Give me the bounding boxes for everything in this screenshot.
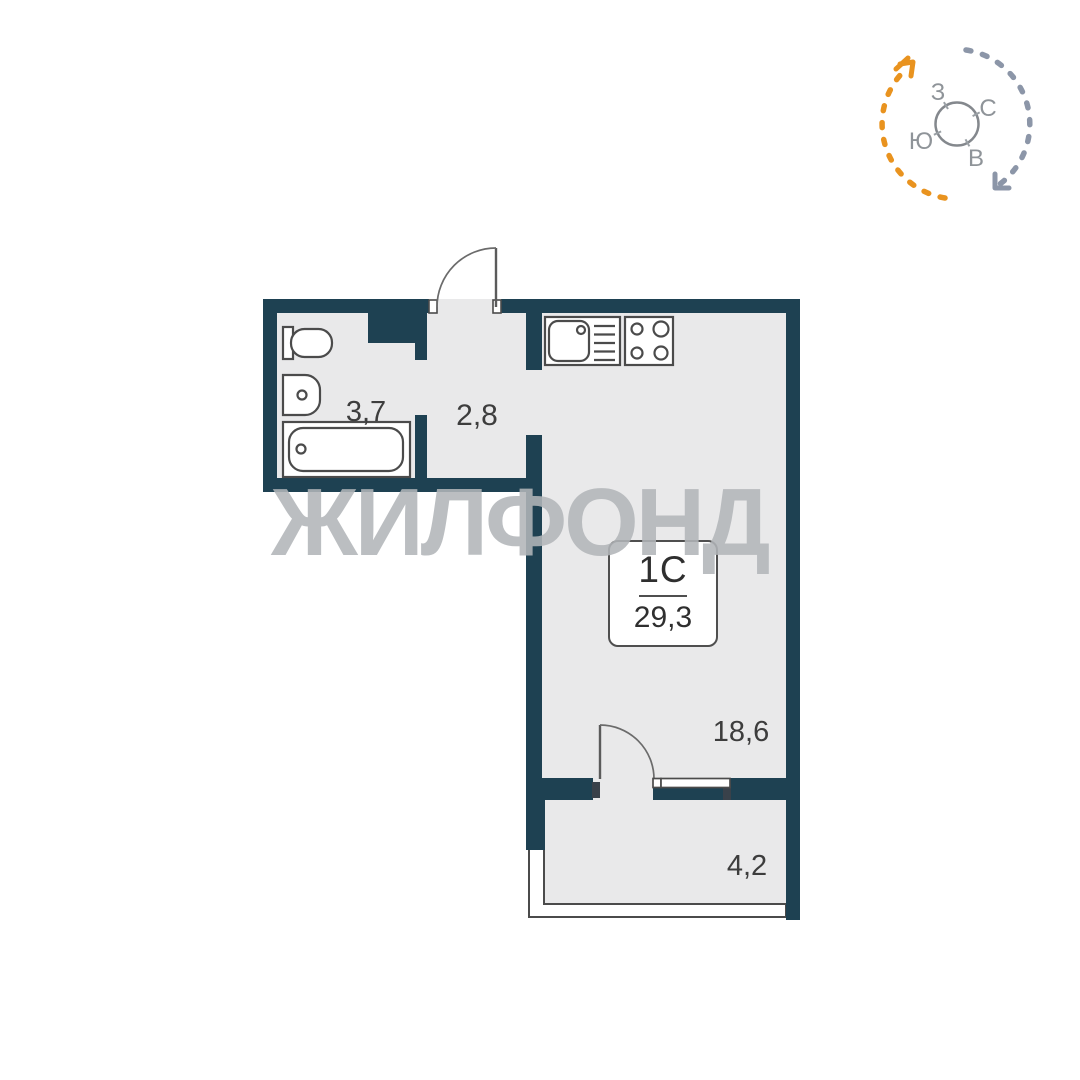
entrance-door-swing-arc (437, 248, 496, 307)
balcony-area-label: 4,2 (727, 850, 767, 882)
balcony-door-jamb-left (592, 782, 600, 798)
vent-shaft-wall-ext (415, 343, 427, 360)
balcony-wall-left (526, 778, 593, 800)
balcony-wall-under-sill (653, 787, 730, 800)
left-wall (263, 299, 277, 492)
agency-watermark: ЖИЛФОНД (271, 475, 767, 571)
living-room-area-label: 18,6 (713, 716, 769, 748)
balcony-window-sill-end (653, 779, 661, 788)
compass-east-label: В (968, 145, 984, 172)
kitchen-sink-drain-icon (577, 326, 585, 334)
info-box-divider (639, 595, 687, 597)
toilet-bowl-icon (291, 329, 332, 357)
unit-total-area: 29,3 (634, 603, 692, 633)
bathroom-area-label: 3,7 (346, 396, 386, 428)
bathtub-drain-icon (297, 445, 306, 454)
balcony-door-opening-floor (593, 778, 653, 800)
entrance-opening-floor (437, 299, 493, 313)
balcony-left-stub-wall (526, 800, 545, 850)
floorplan-canvas: 3,7 2,8 18,6 4,2 1С 29,3 ЖИЛФОНД З С Ю В (0, 0, 1080, 1080)
hallway-area-label: 2,8 (456, 399, 498, 432)
vent-shaft-wall (368, 313, 427, 343)
right-wall (786, 299, 800, 920)
balcony-wall-right (730, 778, 786, 800)
stove-burner-icon (655, 347, 668, 360)
kitchen-fixtures (545, 317, 673, 365)
balcony-window-sill (661, 779, 730, 788)
entrance-jamb-left (429, 300, 437, 313)
compass-south-label: Ю (909, 128, 933, 155)
compass-west-label: З (931, 79, 946, 106)
compass-rose: З С Ю В (865, 30, 1065, 230)
top-wall-right (501, 299, 800, 313)
top-wall-left (263, 299, 429, 313)
stove-burner-icon (654, 322, 669, 337)
washbasin-drain-icon (298, 391, 307, 400)
stove-burner-icon (632, 348, 643, 359)
hall-partition-upper (526, 313, 542, 370)
compass-circle (936, 103, 979, 146)
stove-burner-icon (632, 324, 643, 335)
compass-north-label: С (979, 95, 996, 122)
compass-orange-arrow-icon (900, 62, 913, 76)
